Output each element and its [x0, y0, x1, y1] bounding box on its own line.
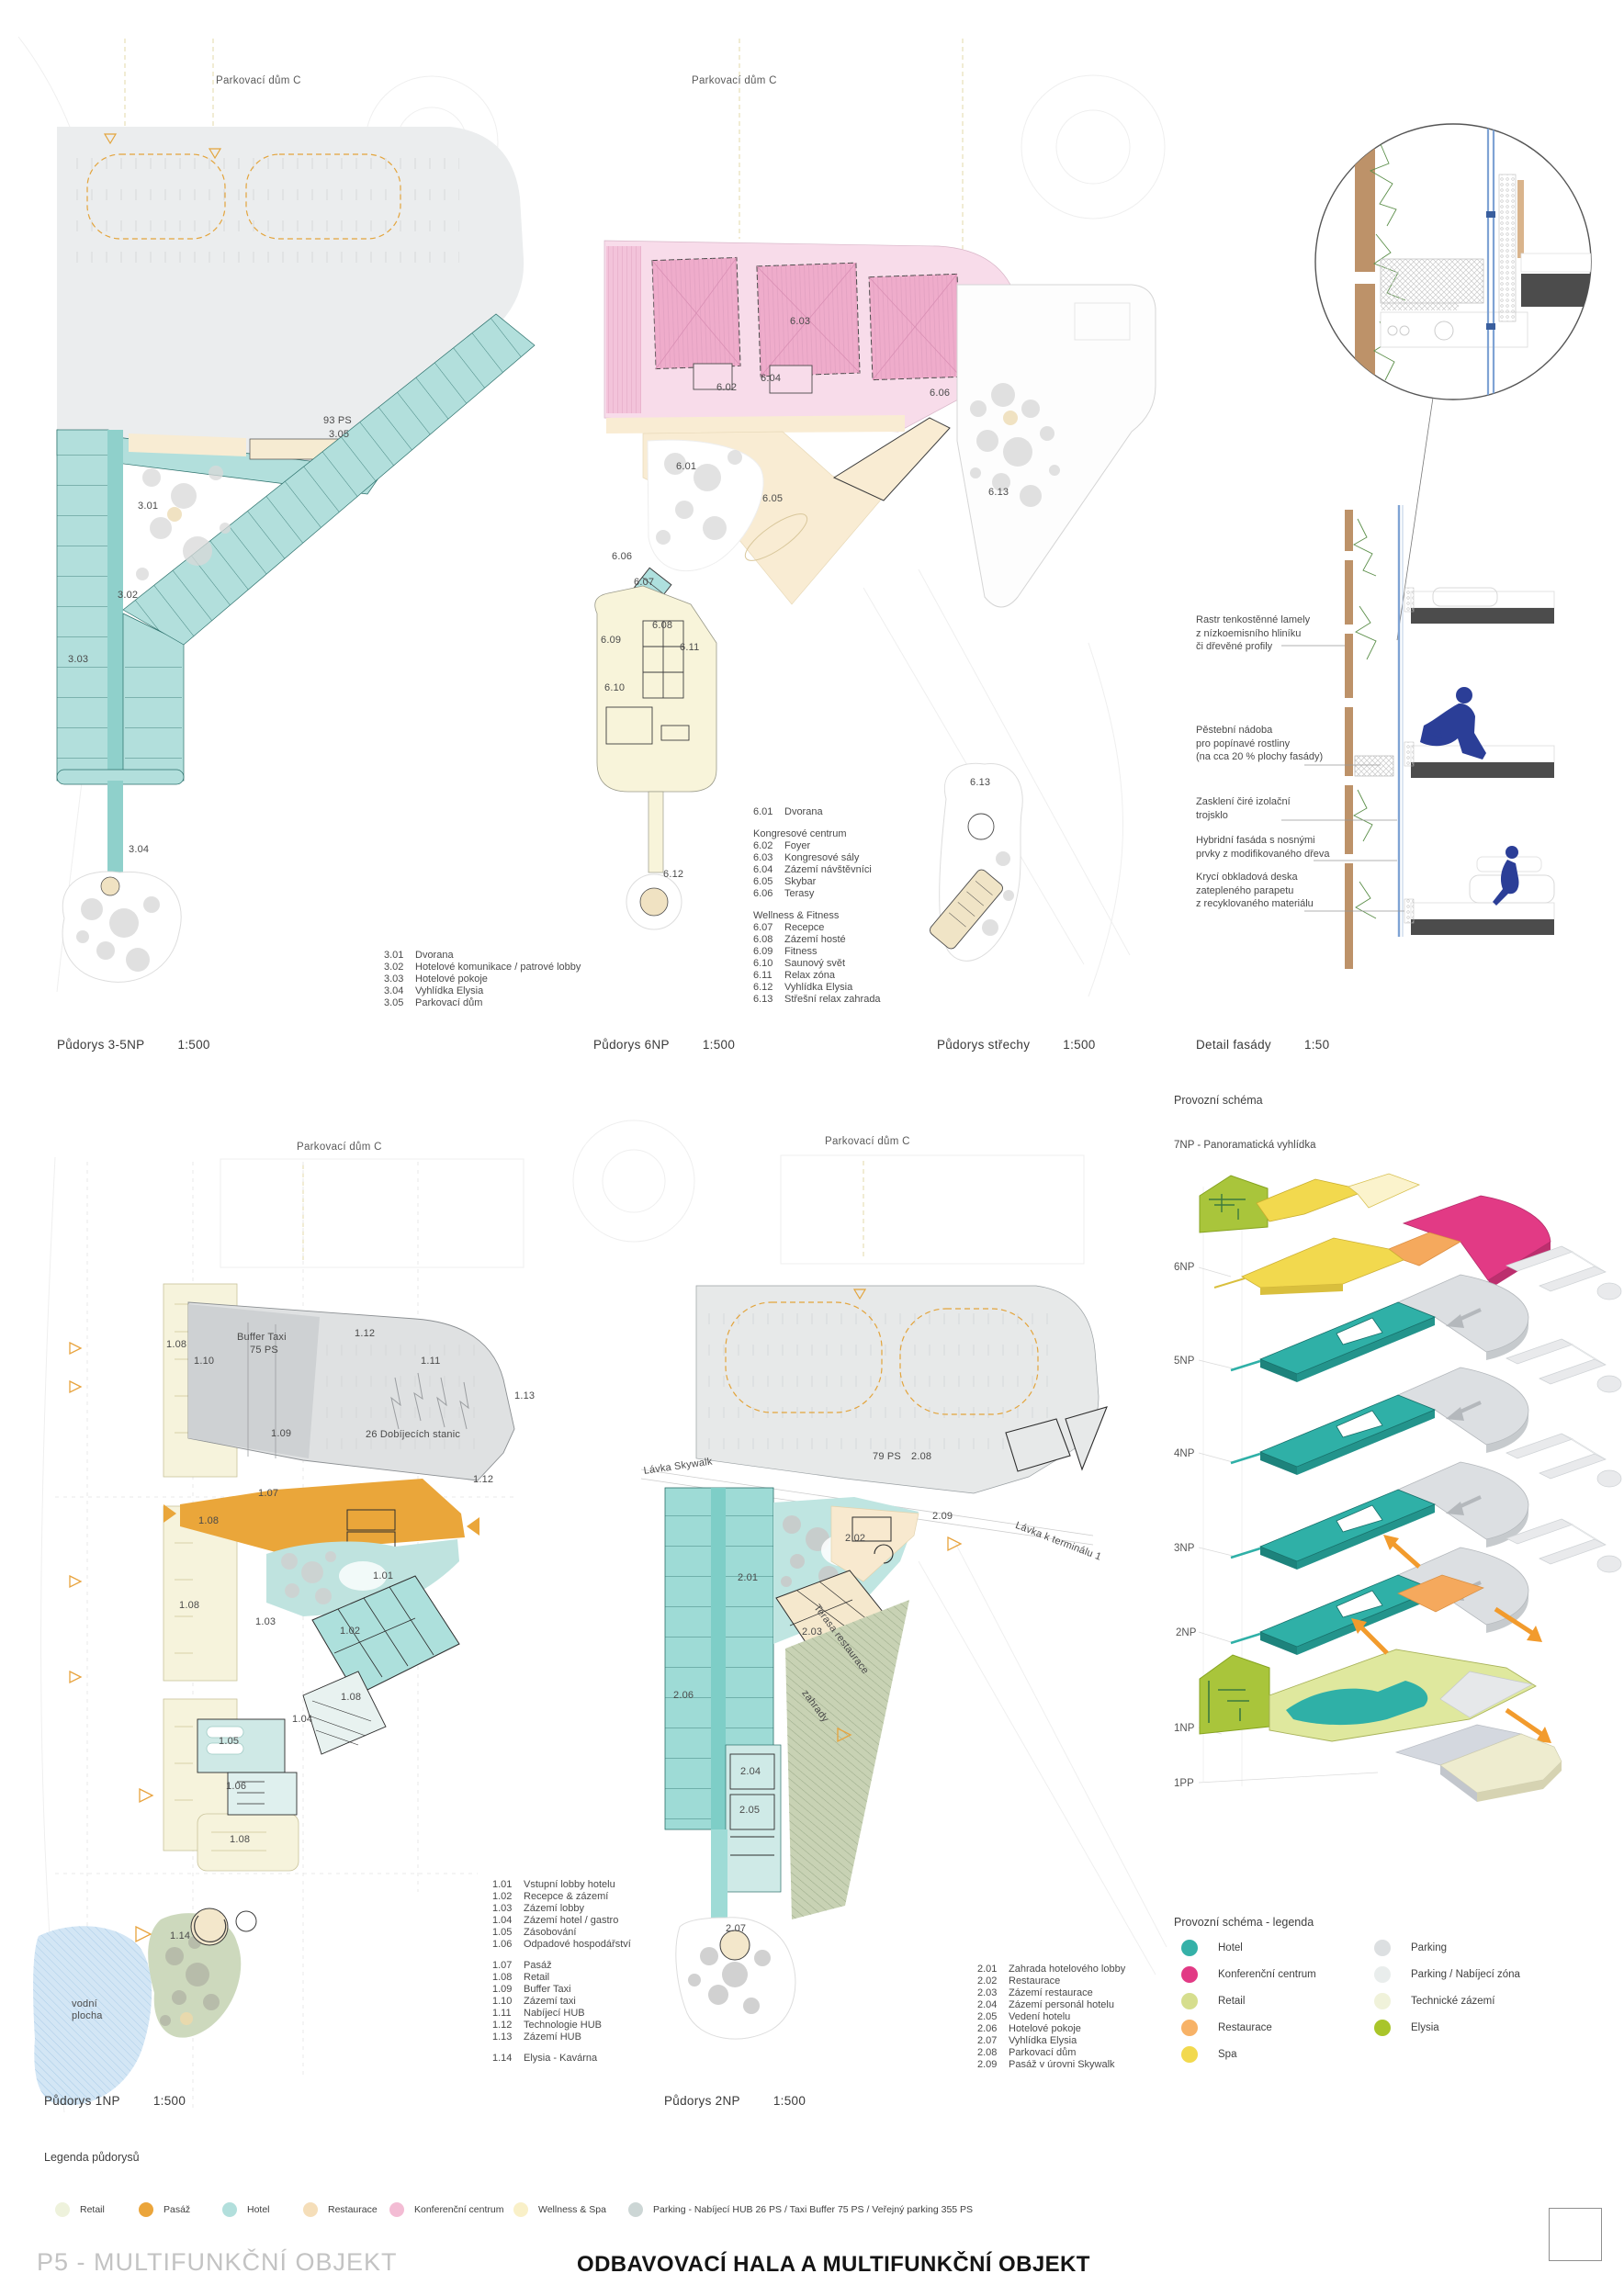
room-code: 1.08 [230, 1834, 250, 1846]
legend-code: 1.09 [492, 1984, 524, 1996]
facade-annotation: Hybridní fasáda s nosnými prvky z modifi… [1196, 834, 1330, 861]
room-code: 3.04 [129, 844, 149, 856]
legend-code: 1.04 [492, 1915, 524, 1927]
legend-code: 3.05 [384, 997, 415, 1009]
legend-color-dot [628, 2202, 643, 2217]
legend-item: Pasáž [139, 2202, 190, 2217]
room-code: 1.08 [341, 1692, 361, 1704]
site-label-parking-house: Parkovací dům C [216, 75, 301, 86]
room-code: 2.03 [802, 1626, 822, 1638]
level-label: 3NP [1174, 1543, 1194, 1554]
room-code: 3.01 [138, 501, 158, 512]
room-code: 6.04 [761, 373, 781, 385]
legend-label: Parkovací dům [1009, 2047, 1076, 2059]
legend-item: Hotel [222, 2202, 270, 2217]
legend-item: Parking [1374, 1940, 1520, 1956]
room-code: 6.12 [663, 869, 683, 881]
legend-label: Zásobování [524, 1927, 576, 1939]
legend-label: Dvorana [415, 950, 454, 962]
legend-label: Střešní relax zahrada [784, 994, 881, 1006]
level-label: 1NP [1174, 1723, 1194, 1734]
legend-color-dot [1374, 1966, 1391, 1983]
legend-code: 6.12 [753, 982, 784, 994]
legend-code: 1.07 [492, 1960, 524, 1972]
legend-item-label: Hotel [1218, 1942, 1243, 1953]
level-label: 2NP [1176, 1627, 1196, 1638]
legend-code: 1.13 [492, 2032, 524, 2043]
legend-code: 6.01 [753, 806, 784, 818]
legend-code: 1.06 [492, 1939, 524, 1951]
level-label: 5NP [1174, 1356, 1194, 1367]
legend-label: Vyhlídka Elysia [415, 985, 483, 997]
room-code: Buffer Taxi [237, 1332, 287, 1344]
legend-item-label: Hotel [247, 2204, 270, 2215]
room-code: 6.13 [988, 487, 1009, 499]
legend-label: Hotelové pokoje [1009, 2023, 1081, 2035]
sheet-number-box [1549, 2208, 1602, 2261]
caption-plan-3-5np: Půdorys 3-5NP 1:500 [57, 1038, 210, 1052]
legend-label: Hotelové pokoje [415, 974, 488, 985]
room-code: 2.02 [845, 1533, 865, 1545]
facade-annotation: Krycí obkladová deska zatepleného parape… [1196, 871, 1314, 911]
legend-color-dot [303, 2202, 318, 2217]
legend-label: Odpadové hospodářství [524, 1939, 631, 1951]
room-code: 6.03 [790, 316, 810, 328]
facade-annotation: Rastr tenkostěnné lamely z nízkoemisního… [1196, 613, 1310, 654]
room-code: 6.01 [676, 461, 696, 473]
legend-label: Foyer [784, 840, 810, 852]
legend-label: Zázemí hotel / gastro [524, 1915, 618, 1927]
legend-item: Parking / Nabíjecí zóna [1374, 1966, 1520, 1983]
legend-item: Konferenční centrum [389, 2202, 503, 2217]
legend-code: 1.14 [492, 2053, 524, 2065]
room-code: 6.11 [680, 642, 699, 654]
legend-code: 1.11 [492, 2008, 524, 2020]
facade-annotation: Zasklení čiré izolační trojsklo [1196, 795, 1291, 822]
legend-label: Relax zóna [784, 970, 835, 982]
level-label: 6NP [1174, 1262, 1194, 1273]
legend-code: 1.08 [492, 1972, 524, 1984]
caption-scale: 1:500 [773, 2094, 806, 2108]
room-code: 93 PS [323, 415, 352, 427]
legend-item: Retail [55, 2202, 105, 2217]
room-code: vodní plocha [72, 1998, 103, 2022]
legend-code: 6.07 [753, 922, 784, 934]
legend-code: 2.09 [977, 2059, 1009, 2071]
room-code: 2.04 [740, 1766, 761, 1778]
legend-code: 2.04 [977, 1999, 1009, 2011]
legend-item: Retail [1181, 1993, 1316, 2009]
room-code: 1.01 [373, 1570, 393, 1582]
legend-color-dot [1181, 2020, 1198, 2036]
room-code: 6.09 [601, 635, 621, 647]
room-code: 3.05 [329, 429, 349, 441]
room-code: 6.02 [716, 382, 737, 394]
legend-item: Spa [1181, 2046, 1316, 2063]
facade-annotation: Pěstební nádoba pro popínavé rostliny (n… [1196, 724, 1323, 764]
legend-label: Zázemí personál hotelu [1009, 1999, 1114, 2011]
legend-code: 6.05 [753, 876, 784, 888]
legend-code: 6.02 [753, 840, 784, 852]
legend-item-label: Pasáž [164, 2204, 190, 2215]
legend-item: Wellness & Spa [513, 2202, 606, 2217]
plan-2np-drawing [641, 1286, 1107, 2039]
facade-detail-drawing [1281, 124, 1622, 969]
legend-code: 3.04 [384, 985, 415, 997]
legend-row: 3.05 Parkovací dům [384, 997, 581, 1009]
legend-color-dot [222, 2202, 237, 2217]
room-code: 3.03 [68, 654, 88, 666]
legend-code: 6.13 [753, 994, 784, 1006]
caption-name: Půdorys 2NP [664, 2094, 740, 2108]
legend-item-label: Wellness & Spa [538, 2204, 606, 2215]
room-code: 1.12 [473, 1474, 493, 1486]
legend-item-label: Restaurace [1218, 2022, 1272, 2033]
room-code: 1.07 [258, 1488, 278, 1500]
legend-item-label: Retail [1218, 1996, 1245, 2007]
legend-item-label: Konferenční centrum [414, 2204, 503, 2215]
room-code: 1.04 [292, 1714, 312, 1726]
legend-item: Technické zázemí [1374, 1993, 1520, 2009]
schema-title: Provozní schéma [1174, 1094, 1263, 1107]
legend-item-label: Parking / Nabíjecí zóna [1411, 1969, 1520, 1980]
room-code: 1.06 [226, 1781, 246, 1793]
legend-label: Technologie HUB [524, 2020, 602, 2032]
legend-code: 3.01 [384, 950, 415, 962]
legend-item: Konferenční centrum [1181, 1966, 1316, 1983]
room-code: 75 PS [250, 1345, 278, 1356]
room-code: 26 Dobíjecích stanic [366, 1429, 460, 1441]
legend-row: 3.01 Dvorana [384, 950, 581, 962]
schema-top-level-label: 7NP - Panoramatická vyhlídka [1174, 1140, 1315, 1151]
legend-item: Restaurace [1181, 2020, 1316, 2036]
room-code: 6.08 [652, 620, 672, 632]
site-label-parking-house: Parkovací dům C [297, 1142, 382, 1153]
legend-code: 2.05 [977, 2011, 1009, 2023]
legend-code: 6.04 [753, 864, 784, 876]
legend-label: Pasáž [524, 1960, 552, 1972]
legend-item-label: Spa [1218, 2049, 1236, 2060]
room-code: 3.02 [118, 590, 138, 602]
legend-color-dot [1181, 1993, 1198, 2009]
legend-label: Terasy [784, 888, 814, 900]
room-code: 1.11 [421, 1356, 440, 1367]
legend-code: 6.03 [753, 852, 784, 864]
legend-item: Hotel [1181, 1940, 1316, 1956]
legend-row: 3.03 Hotelové pokoje [384, 974, 581, 985]
legend-label: Retail [524, 1972, 549, 1984]
legend-group-title: Wellness & Fitness [753, 910, 881, 922]
legend-label: Fitness [784, 946, 817, 958]
caption-plan-roof: Půdorys střechy 1:500 [937, 1038, 1096, 1052]
legend-code: 6.08 [753, 934, 784, 946]
room-code: 1.14 [170, 1930, 190, 1942]
legend-label: Zázemí hosté [784, 934, 846, 946]
legend-label: Vstupní lobby hotelu [524, 1879, 615, 1891]
legend-label: Zázemí lobby [524, 1903, 584, 1915]
room-code: 6.06 [612, 551, 632, 563]
legend-code: 6.11 [753, 970, 784, 982]
legend-color-dot [1181, 1940, 1198, 1956]
legend-color-dot [55, 2202, 70, 2217]
legend-item-label: Elysia [1411, 2022, 1439, 2033]
legend-label: Vedení hotelu [1009, 2011, 1070, 2023]
legend-label: Zázemí HUB [524, 2032, 581, 2043]
legend-label: Nabíjecí HUB [524, 2008, 585, 2020]
legend-label: Skybar [784, 876, 816, 888]
legend-item: Elysia [1374, 2020, 1520, 2036]
room-code: 2.09 [932, 1511, 953, 1523]
room-code: 2.05 [739, 1805, 760, 1817]
caption-plan-1np: Půdorys 1NP 1:500 [44, 2094, 186, 2108]
site-label-parking-house: Parkovací dům C [692, 75, 777, 86]
legend-item-label: Restaurace [328, 2204, 378, 2215]
legend-code: 6.06 [753, 888, 784, 900]
legend-row: 3.02 Hotelové komunikace / patrové lobby [384, 962, 581, 974]
caption-name: Půdorys střechy [937, 1038, 1030, 1052]
caption-scale: 1:500 [1063, 1038, 1095, 1052]
legend-label: Hotelové komunikace / patrové lobby [415, 962, 581, 974]
level-label: 4NP [1174, 1448, 1194, 1459]
caption-scale: 1:500 [703, 1038, 735, 1052]
room-code: 1.08 [166, 1339, 186, 1351]
schema-legend-col2: Parking Parking / Nabíjecí zóna Technick… [1374, 1940, 1520, 2036]
presentation-board: Parkovací dům C Parkovací dům C Parkovac… [0, 0, 1624, 2296]
room-code: 2.01 [738, 1572, 758, 1584]
legend-code: 1.02 [492, 1891, 524, 1903]
level-label: 1PP [1174, 1778, 1194, 1789]
legend-code: 2.08 [977, 2047, 1009, 2059]
caption-scale: 1:50 [1304, 1038, 1329, 1052]
legend-label: Parkovací dům [415, 997, 482, 1009]
caption-name: Půdorys 3-5NP [57, 1038, 144, 1052]
legend-code: 2.02 [977, 1975, 1009, 1987]
room-code: 1.02 [340, 1626, 360, 1638]
legend-code: 1.03 [492, 1903, 524, 1915]
caption-scale: 1:500 [153, 2094, 186, 2108]
sheet-title: ODBAVOVACÍ HALA A MULTIFUNKČNÍ OBJEKT [577, 2252, 1090, 2278]
plan-legend-title: Legenda půdorysů [44, 2151, 140, 2164]
legend-label: Buffer Taxi [524, 1984, 571, 1996]
legend-color-dot [389, 2202, 404, 2217]
plan-1np-drawing [33, 1162, 514, 2112]
legend-item-label: Technické zázemí [1411, 1996, 1494, 2007]
room-code: 1.05 [219, 1736, 239, 1748]
legend-item-label: Parking - Nabíjecí HUB 26 PS / Taxi Buff… [653, 2204, 973, 2215]
legend-code: 2.01 [977, 1964, 1009, 1975]
legend-label: Vyhlídka Elysia [784, 982, 852, 994]
legend-item-label: Parking [1411, 1942, 1447, 1953]
room-code: 1.03 [255, 1616, 276, 1628]
legend-label: Kongresové sály [784, 852, 859, 864]
legend-code: 2.03 [977, 1987, 1009, 1999]
legend-label: Restaurace [1009, 1975, 1060, 1987]
legend-plan-6np: 6.01 Dvorana Kongresové centrum 6.02 Foy… [753, 806, 881, 1006]
site-label-parking-house: Parkovací dům C [825, 1136, 910, 1147]
legend-code: 2.07 [977, 2035, 1009, 2047]
legend-item: Parking - Nabíjecí HUB 26 PS / Taxi Buff… [628, 2202, 973, 2217]
room-code: 1.08 [179, 1600, 199, 1612]
legend-color-dot [1181, 1966, 1198, 1983]
legend-label: Recepce [784, 922, 824, 934]
legend-row: 3.04 Vyhlídka Elysia [384, 985, 581, 997]
legend-color-dot [1181, 2046, 1198, 2063]
legend-code: 1.10 [492, 1996, 524, 2008]
schema-legend-title: Provozní schéma - legenda [1174, 1916, 1314, 1929]
legend-item-label: Konferenční centrum [1218, 1969, 1316, 1980]
legend-color-dot [1374, 1940, 1391, 1956]
caption-plan-6np: Půdorys 6NP 1:500 [593, 1038, 735, 1052]
room-code: 79 PS [873, 1451, 901, 1463]
room-code: 6.06 [930, 388, 950, 400]
room-code: 2.06 [673, 1690, 694, 1702]
legend-code: 6.10 [753, 958, 784, 970]
legend-color-dot [513, 2202, 528, 2217]
legend-item-label: Retail [80, 2204, 105, 2215]
legend-label: Saunový svět [784, 958, 845, 970]
legend-label: Pasáž v úrovni Skywalk [1009, 2059, 1115, 2071]
legend-label: Zázemí návštěvníci [784, 864, 872, 876]
legend-color-dot [1374, 1993, 1391, 2009]
legend-code: 3.02 [384, 962, 415, 974]
legend-code: 1.01 [492, 1879, 524, 1891]
room-code: 6.05 [762, 493, 783, 505]
legend-plan-2np: 2.01 Zahrada hotelového lobby2.02 Restau… [977, 1964, 1125, 2071]
legend-color-dot [139, 2202, 153, 2217]
room-code: 1.08 [198, 1515, 219, 1527]
caption-name: Půdorys 6NP [593, 1038, 670, 1052]
legend-label: Zázemí taxi [524, 1996, 576, 2008]
room-code: 1.12 [355, 1328, 375, 1340]
room-code: 2.08 [911, 1451, 931, 1463]
schema-legend-col1: Hotel Konferenční centrum Retail Restaur… [1181, 1940, 1316, 2063]
legend-label: Dvorana [784, 806, 823, 818]
schema-axon-drawing [1199, 1174, 1621, 1802]
room-code: 6.10 [604, 682, 625, 694]
room-code: 6.13 [970, 777, 990, 789]
caption-plan-2np: Půdorys 2NP 1:500 [664, 2094, 806, 2108]
legend-group-title: Kongresové centrum [753, 828, 881, 840]
project-title: P5 - MULTIFUNKČNÍ OBJEKT [37, 2248, 398, 2277]
caption-facade-detail: Detail fasády 1:50 [1196, 1038, 1329, 1052]
legend-label: Recepce & zázemí [524, 1891, 608, 1903]
legend-plan-3-5np: 3.01 Dvorana 3.02 Hotelové komunikace / … [384, 950, 581, 1009]
room-code: 1.10 [194, 1356, 214, 1367]
caption-name: Půdorys 1NP [44, 2094, 120, 2108]
legend-code: 1.05 [492, 1927, 524, 1939]
room-code: 2.07 [726, 1923, 746, 1935]
legend-label: Elysia - Kavárna [524, 2053, 597, 2065]
caption-name: Detail fasády [1196, 1038, 1271, 1052]
legend-code: 6.09 [753, 946, 784, 958]
legend-code: 2.06 [977, 2023, 1009, 2035]
legend-plan-1np: 1.01 Vstupní lobby hotelu1.02 Recepce & … [492, 1879, 631, 2065]
caption-scale: 1:500 [177, 1038, 209, 1052]
legend-code: 3.03 [384, 974, 415, 985]
legend-item: Restaurace [303, 2202, 378, 2217]
legend-color-dot [1374, 2020, 1391, 2036]
room-code: 1.09 [271, 1428, 291, 1440]
legend-label: Vyhlídka Elysia [1009, 2035, 1077, 2047]
legend-label: Zahrada hotelového lobby [1009, 1964, 1125, 1975]
room-code: 1.13 [514, 1390, 535, 1402]
room-code: 6.07 [634, 577, 654, 589]
legend-label: Zázemí restaurace [1009, 1987, 1093, 1999]
legend-code: 1.12 [492, 2020, 524, 2032]
